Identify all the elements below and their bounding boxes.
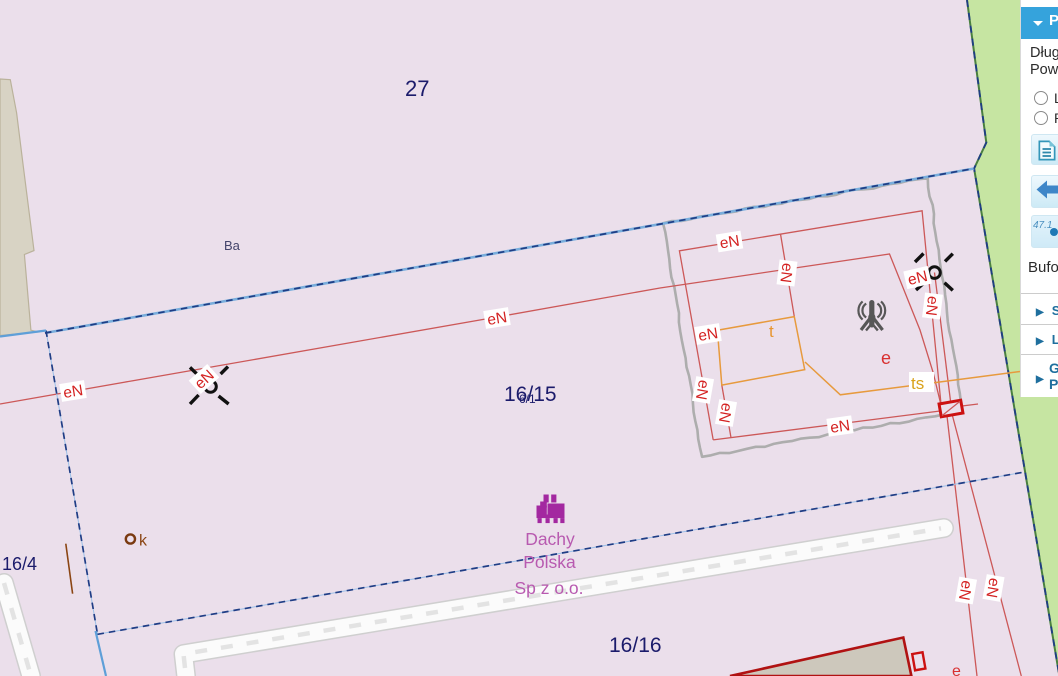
svg-text:27: 27 <box>405 76 429 101</box>
svg-text:Sp z o.o.: Sp z o.o. <box>514 578 583 598</box>
svg-text:eN: eN <box>486 309 508 329</box>
svg-text:Dachy: Dachy <box>525 529 575 549</box>
svg-text:e: e <box>881 348 891 368</box>
svg-text:eN: eN <box>906 268 929 289</box>
svg-text:6/1: 6/1 <box>519 392 536 406</box>
svg-text:16/4: 16/4 <box>2 554 37 574</box>
svg-text:eN: eN <box>776 262 795 284</box>
svg-text:ts: ts <box>911 374 924 393</box>
svg-text:eN: eN <box>692 379 712 401</box>
svg-text:eN: eN <box>955 579 975 601</box>
svg-text:e: e <box>952 663 961 676</box>
svg-text:eN: eN <box>719 233 741 253</box>
svg-text:Polska: Polska <box>523 552 576 572</box>
svg-text:t: t <box>769 322 774 341</box>
svg-text:eN: eN <box>922 295 941 317</box>
svg-text:eN: eN <box>715 402 735 424</box>
svg-text:eN: eN <box>697 325 719 345</box>
svg-text:eN: eN <box>982 577 1002 599</box>
svg-text:eN: eN <box>62 382 84 402</box>
svg-text:eN: eN <box>192 367 218 393</box>
svg-text:eN: eN <box>829 417 851 437</box>
svg-text:Ba: Ba <box>224 238 241 253</box>
svg-text:16/16: 16/16 <box>609 634 662 657</box>
